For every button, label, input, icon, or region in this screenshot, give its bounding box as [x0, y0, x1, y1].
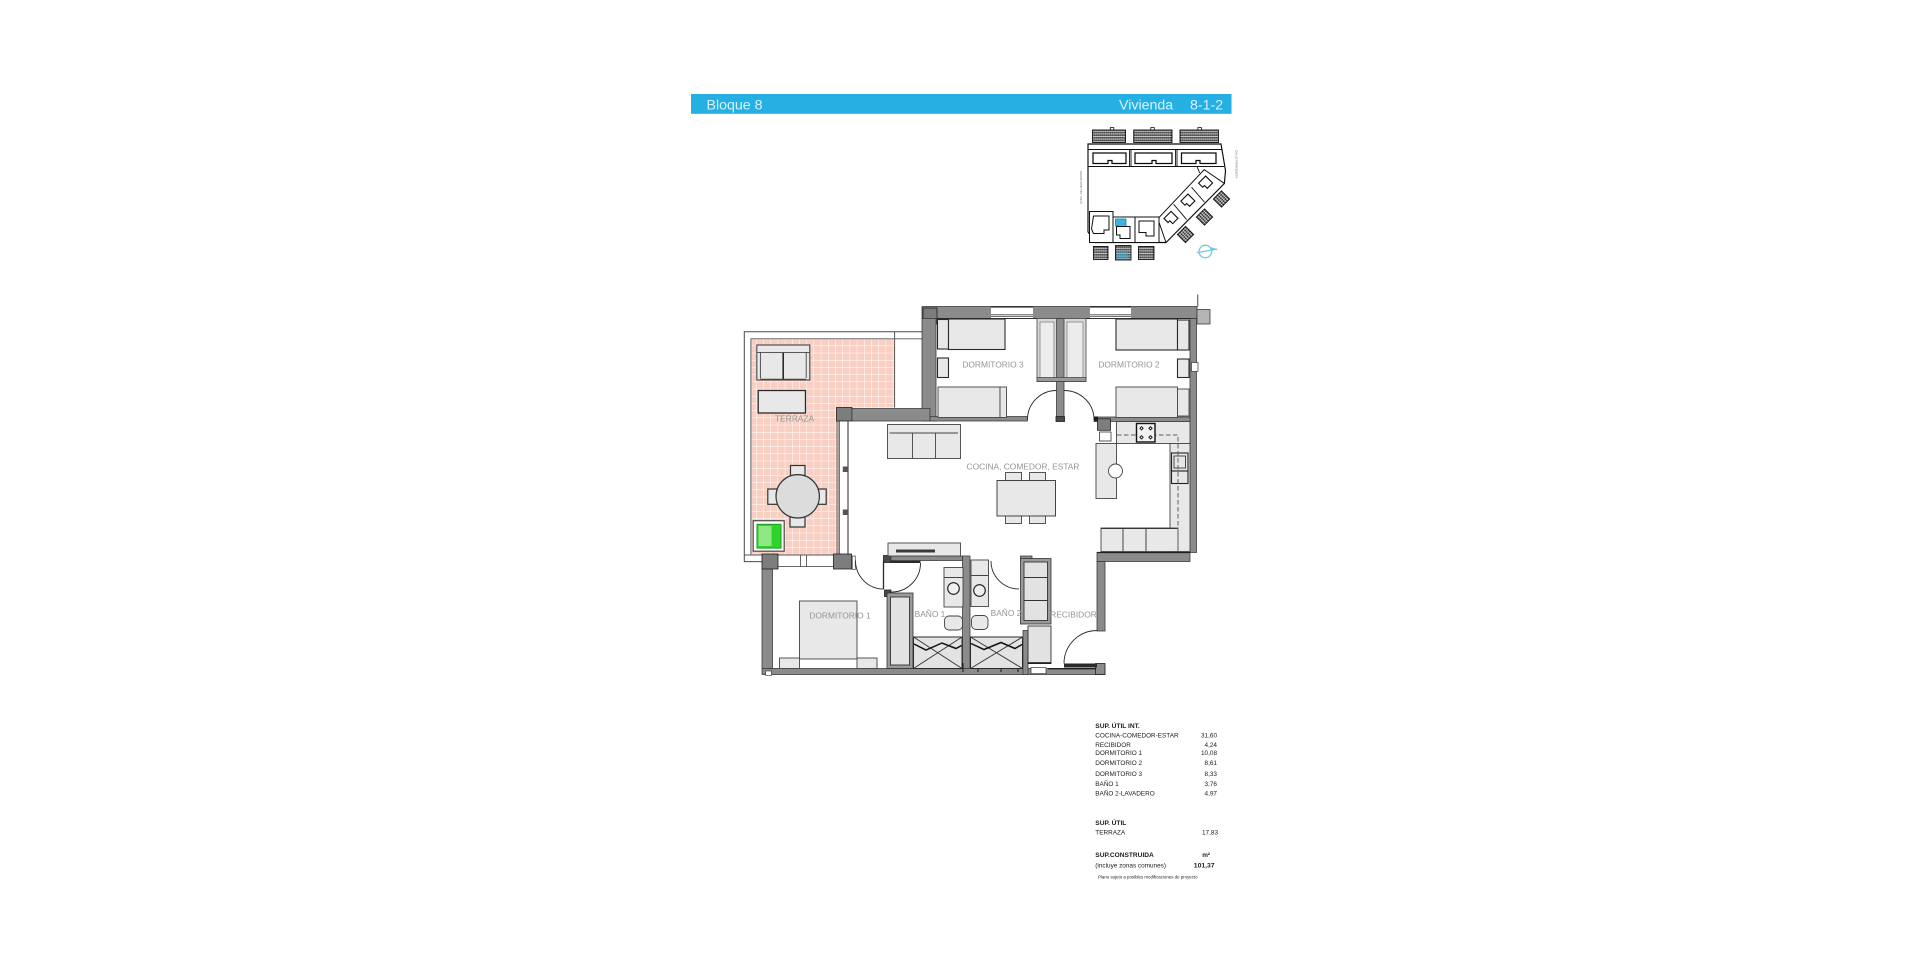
svg-text:CALLE PERIODISTA: CALLE PERIODISTA	[1235, 150, 1239, 178]
svg-text:TERRAZA: TERRAZA	[1095, 830, 1126, 837]
svg-text:DORMITORIO 1: DORMITORIO 1	[1095, 750, 1142, 757]
svg-text:DORMITORIO 3: DORMITORIO 3	[962, 359, 1024, 369]
svg-text:17,83: 17,83	[1202, 830, 1218, 837]
svg-text:DORMITORIO 2: DORMITORIO 2	[1098, 359, 1160, 369]
svg-text:TERRAZA: TERRAZA	[775, 414, 815, 424]
svg-text:BAÑO 1: BAÑO 1	[915, 609, 946, 619]
svg-text:10,08: 10,08	[1201, 750, 1217, 757]
svg-text:DORMITORIO 2: DORMITORIO 2	[1095, 760, 1142, 767]
svg-text:4,97: 4,97	[1205, 791, 1218, 798]
svg-text:BAÑO 2-LAVADERO: BAÑO 2-LAVADERO	[1095, 789, 1154, 798]
svg-text:(incluye zonas comunes): (incluye zonas comunes)	[1095, 863, 1166, 870]
svg-text:m²: m²	[1202, 852, 1210, 859]
svg-text:8-1-2: 8-1-2	[1190, 97, 1223, 113]
svg-text:101,37: 101,37	[1194, 863, 1215, 870]
svg-text:DORMITORIO 1: DORMITORIO 1	[809, 611, 871, 621]
svg-text:SUP.CONSTRUIDA: SUP.CONSTRUIDA	[1095, 852, 1154, 859]
svg-text:4,24: 4,24	[1205, 742, 1218, 749]
svg-text:SUP. ÚTIL: SUP. ÚTIL	[1095, 818, 1126, 827]
svg-text:31,60: 31,60	[1201, 733, 1217, 740]
svg-text:3,76: 3,76	[1205, 781, 1218, 788]
svg-text:COCINA, COMEDOR, ESTAR: COCINA, COMEDOR, ESTAR	[967, 461, 1080, 471]
svg-text:DORMITORIO 3: DORMITORIO 3	[1095, 771, 1142, 778]
svg-text:BAÑO 1: BAÑO 1	[1095, 779, 1119, 788]
svg-text:8,33: 8,33	[1205, 771, 1218, 778]
svg-text:RECIBIDOR: RECIBIDOR	[1095, 742, 1131, 749]
svg-text:RECIBIDOR: RECIBIDOR	[1050, 609, 1097, 619]
svg-text:8,61: 8,61	[1205, 760, 1218, 767]
svg-text:Vivienda: Vivienda	[1119, 97, 1173, 113]
svg-text:Bloque 8: Bloque 8	[707, 97, 763, 113]
svg-text:Plano sujeto a posibles modifi: Plano sujeto a posibles modificaciones d…	[1098, 874, 1198, 879]
svg-text:AVDA. DEL RECUERDO: AVDA. DEL RECUERDO	[1079, 170, 1083, 204]
svg-text:SUP. ÚTIL INT.: SUP. ÚTIL INT.	[1095, 721, 1140, 730]
svg-text:COCINA-COMEDOR-ESTAR: COCINA-COMEDOR-ESTAR	[1095, 733, 1179, 740]
svg-text:BAÑO 2: BAÑO 2	[991, 608, 1022, 618]
